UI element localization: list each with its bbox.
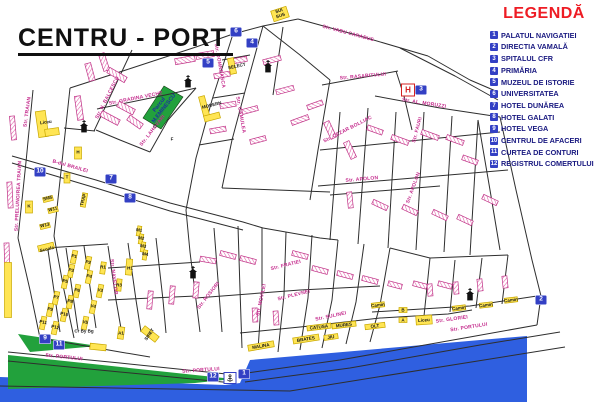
building-label: M3 <box>139 244 146 250</box>
building-label: MURES <box>336 323 353 330</box>
building-label: P8 <box>67 299 73 305</box>
legend-item-label: SPITALUL CFR <box>501 55 553 62</box>
building-label: P4 <box>86 274 92 280</box>
building-label: P6 <box>74 288 80 294</box>
legend-item-number: 2 <box>490 43 498 51</box>
map-marker-4: 4 <box>247 39 258 48</box>
street-label: Str. PRELUNGIREA TRAIAN <box>15 161 24 232</box>
building-label: Camin <box>479 303 493 310</box>
legend-item: 1PALATUL NAVIGATIEI <box>490 30 598 42</box>
building-label: P7 <box>53 295 59 301</box>
legend-item-number: 5 <box>490 78 498 86</box>
legend-item: 10CENTRUL DE AFACERI <box>490 135 598 147</box>
building-label: JIU <box>327 335 335 341</box>
building-label: MALINA <box>252 343 270 351</box>
legend-item-number: 11 <box>490 148 498 156</box>
building-label: Liceu <box>40 120 52 127</box>
legend-item-number: 12 <box>490 160 498 168</box>
hospital-icon: H <box>401 84 415 97</box>
map-marker-3: 3 <box>416 86 427 95</box>
building-label: M4 <box>141 252 148 258</box>
building-label: OLT <box>370 324 379 330</box>
legend-item: 2DIRECTIA VAMALĂ <box>490 41 598 53</box>
building-label: B <box>401 309 404 314</box>
street-label: Str. FAURI <box>412 117 424 144</box>
church-icon <box>263 60 274 73</box>
map-marker-11: 11 <box>54 341 65 350</box>
building-label: H <box>76 151 79 156</box>
legend-item: 8HOTEL GALATI <box>490 111 598 123</box>
legend-item-number: 10 <box>490 137 498 145</box>
building-label: M2 <box>137 236 144 242</box>
legend: LEGENDĂ 1PALATUL NAVIGATIEI2DIRECTIA VAM… <box>490 5 598 170</box>
street-label: Str. SULINEI <box>315 311 347 322</box>
building-label: R3 <box>116 284 122 289</box>
building-label: CATUSA <box>310 324 329 331</box>
building-label: BRATES <box>297 336 316 344</box>
legend-item-label: REGISTRUL COMERTULUI <box>501 160 594 167</box>
legend-item-number: 7 <box>490 102 498 110</box>
street-label: Str. PORTULUI <box>450 323 488 334</box>
building-label: H1 <box>127 267 133 272</box>
map-marker-12: 12 <box>208 373 219 382</box>
building-label: V5 <box>82 320 88 326</box>
legend-item-label: UNIVERSITATEA <box>501 90 559 97</box>
street-label: Str. TRAIAN <box>23 97 32 128</box>
building-label: W11 <box>48 207 58 214</box>
legend-item-number: 6 <box>490 90 498 98</box>
city-map-page: Str. TRAIANStr. PRELUNGIREA TRAIANB-dul … <box>0 0 600 403</box>
legend-item: 4PRIMĂRIA <box>490 65 598 77</box>
legend-item-label: MUZEUL DE ISTORIE <box>501 79 575 86</box>
building-label: P1 <box>71 254 77 260</box>
building-label: V3 <box>97 288 103 294</box>
street-label: Str. APOLON <box>345 176 378 184</box>
street-label: Str. AL. MORUZZI <box>402 98 447 110</box>
legend-item-number: 8 <box>490 113 498 121</box>
legend-item-number: 3 <box>490 55 498 63</box>
page-title: CENTRU - PORT <box>18 25 233 57</box>
legend-item-label: DIRECTIA VAMALĂ <box>501 43 568 50</box>
church-icon <box>188 266 199 279</box>
map-marker-5: 5 <box>203 59 214 68</box>
street-label: Str. CEZAR BOLLIAC <box>323 116 373 145</box>
building-label: W13 <box>40 222 50 229</box>
building-label: M1 <box>135 228 142 234</box>
building-label: P3 <box>68 268 74 274</box>
church-icon <box>465 288 476 301</box>
street-label: Str. RASARITULUI <box>340 72 387 81</box>
map-marker-1: 1 <box>239 370 250 379</box>
building-label: Liceu <box>418 318 430 324</box>
building-label: Cr By Bg <box>74 330 93 335</box>
building-label: TRAP <box>80 193 88 206</box>
street-label: Str. PLEVNEI <box>277 290 310 303</box>
legend-item: 12REGISTRUL COMERTULUI <box>490 158 598 170</box>
legend-item-label: CURTEA DE CONTURI <box>501 149 579 156</box>
building-label: MODERN <box>202 101 223 111</box>
legend-item-number: 4 <box>490 67 498 75</box>
building-label: P2 <box>85 260 91 266</box>
legend-item-number: 1 <box>490 31 498 39</box>
building-label: T <box>66 176 69 181</box>
street-label: Str. GAMULEA <box>234 96 245 133</box>
building-label: A1 <box>118 332 124 337</box>
anchor-icon <box>224 372 237 384</box>
legend-item: 9HOTEL VEGA <box>490 123 598 135</box>
legend-title: LEGENDĂ <box>490 5 598 23</box>
building-label: Camin <box>504 298 518 305</box>
church-icon <box>79 120 90 133</box>
building-label: P5 <box>62 279 68 285</box>
building-label: A <box>401 319 404 324</box>
map-marker-8: 8 <box>125 194 136 203</box>
building-label: SM5 <box>43 195 53 202</box>
building-label: SIRET <box>144 328 156 342</box>
street-label: Str. GLORIEI <box>436 315 469 324</box>
building-label: P10 <box>60 312 69 318</box>
street-label: Str. MOVILEI <box>256 284 268 317</box>
building-label: R1 <box>100 266 106 271</box>
legend-items: 1PALATUL NAVIGATIEI2DIRECTIA VAMALĂ3SPIT… <box>490 30 598 170</box>
building-label: Camin <box>371 303 385 310</box>
legend-item: 6UNIVERSITATEA <box>490 88 598 100</box>
street-label: Str. APOLON <box>406 172 422 205</box>
street-label: Str. FRATIEI <box>270 260 301 272</box>
church-icon <box>183 75 194 88</box>
building-label: SUI SUS <box>274 8 286 20</box>
building-label: K <box>27 205 30 210</box>
street-label: Str. VADU CARABUS <box>322 25 375 44</box>
building-label: P12 <box>51 325 60 331</box>
building-label: V4 <box>90 304 96 310</box>
legend-item-label: CENTRUL DE AFACERI <box>501 137 582 144</box>
legend-item-label: PRIMĂRIA <box>501 67 537 74</box>
legend-item: 11CURTEA DE CONTURI <box>490 146 598 158</box>
legend-item: 3SPITALUL CFR <box>490 53 598 65</box>
building-label: P11 <box>39 320 48 326</box>
map-marker-9: 9 <box>40 335 51 344</box>
building-label: P9 <box>47 307 53 313</box>
street-label: B-dul BRAILEI <box>52 160 89 175</box>
legend-item-label: HOTEL DUNĂREA <box>501 102 564 109</box>
legend-item: 7HOTEL DUNĂREA <box>490 100 598 112</box>
building-label: F <box>171 138 174 143</box>
street-label: Str. PORTULUI <box>45 354 83 363</box>
street-label: Str. ROSIORI <box>197 281 221 310</box>
map-marker-7: 7 <box>106 175 117 184</box>
legend-item-number: 9 <box>490 125 498 133</box>
legend-item-label: HOTEL GALATI <box>501 114 554 121</box>
legend-item: 5MUZEUL DE ISTORIE <box>490 76 598 88</box>
building-label: C <box>153 125 156 130</box>
legend-item-label: PALATUL NAVIGATIEI <box>501 32 577 39</box>
legend-item-label: HOTEL VEGA <box>501 125 548 132</box>
map-marker-10: 10 <box>35 168 46 177</box>
building-label: SELECT <box>228 63 246 72</box>
building-label: Camin <box>452 306 466 313</box>
map-marker-2: 2 <box>536 296 547 305</box>
building-label: Scoala <box>39 246 54 254</box>
street-label: Str. NAVELOR <box>108 259 117 295</box>
